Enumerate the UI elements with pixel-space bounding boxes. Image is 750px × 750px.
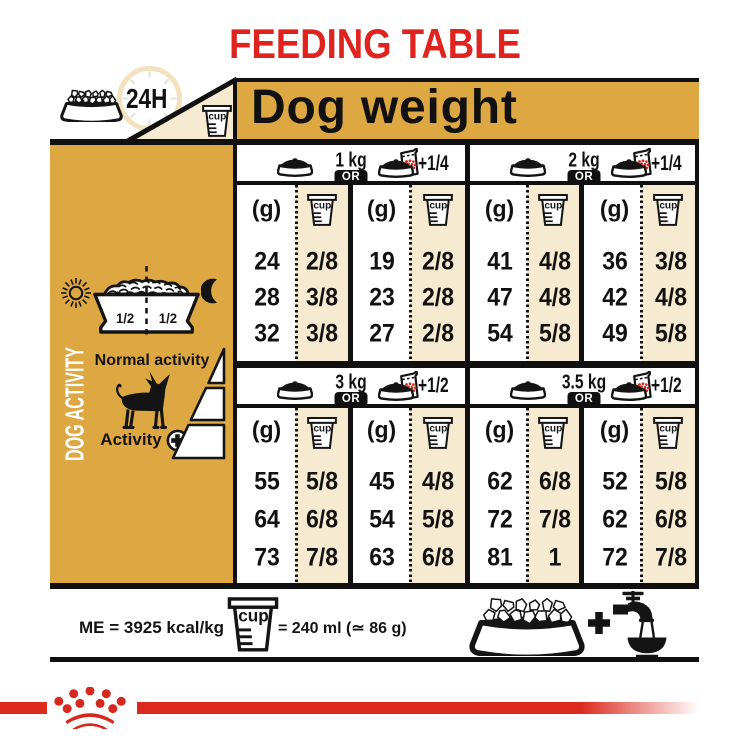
svg-text:1/2: 1/2 <box>159 311 177 326</box>
svg-text:1/2: 1/2 <box>116 311 134 326</box>
